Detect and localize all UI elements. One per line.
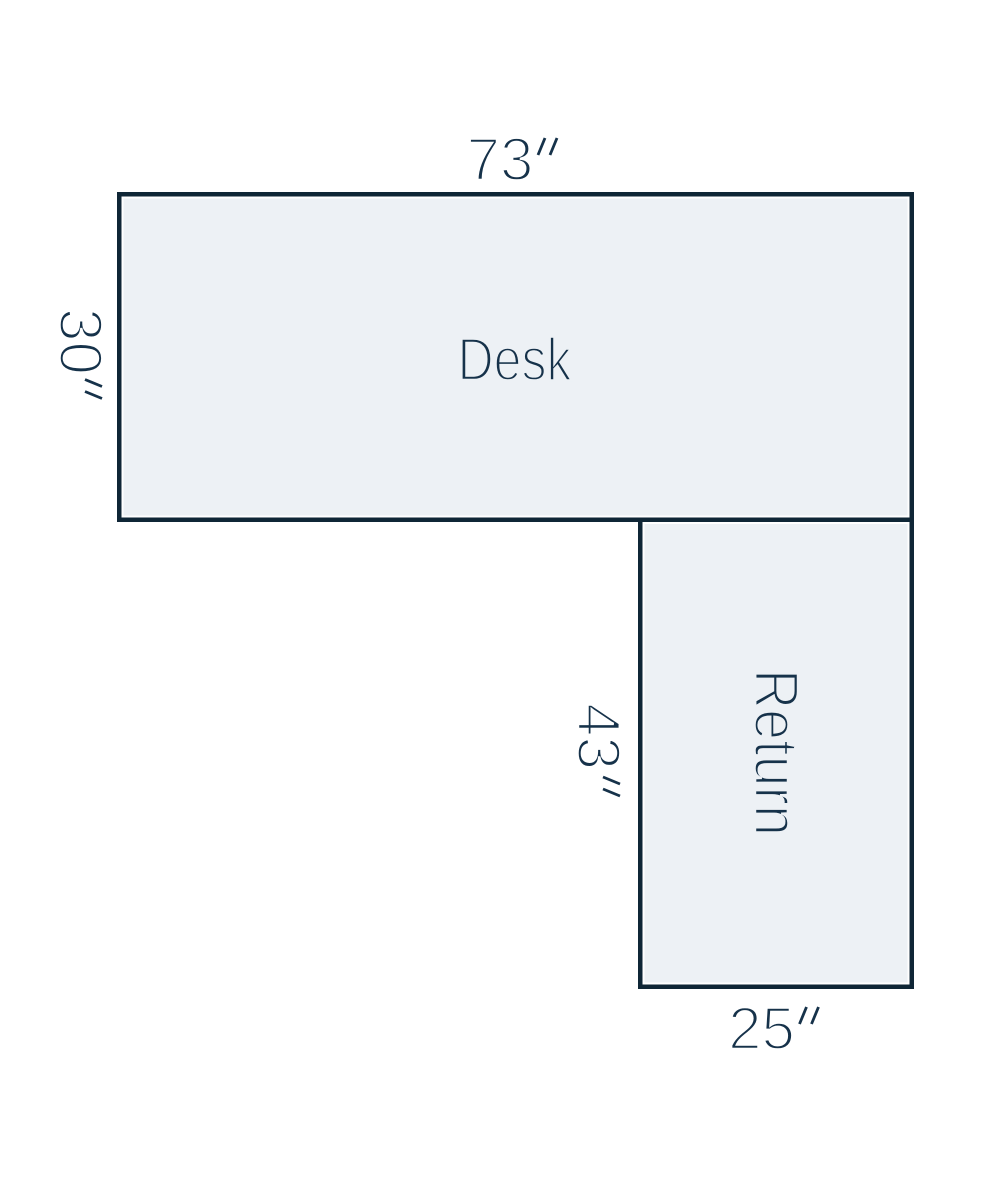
svg-text:25: 25 xyxy=(728,995,795,1062)
svg-text:73: 73 xyxy=(467,126,534,193)
svg-text:43: 43 xyxy=(565,703,632,770)
svg-text:Desk: Desk xyxy=(458,326,573,393)
svg-text:30: 30 xyxy=(47,308,114,375)
svg-text:Return: Return xyxy=(741,669,810,836)
